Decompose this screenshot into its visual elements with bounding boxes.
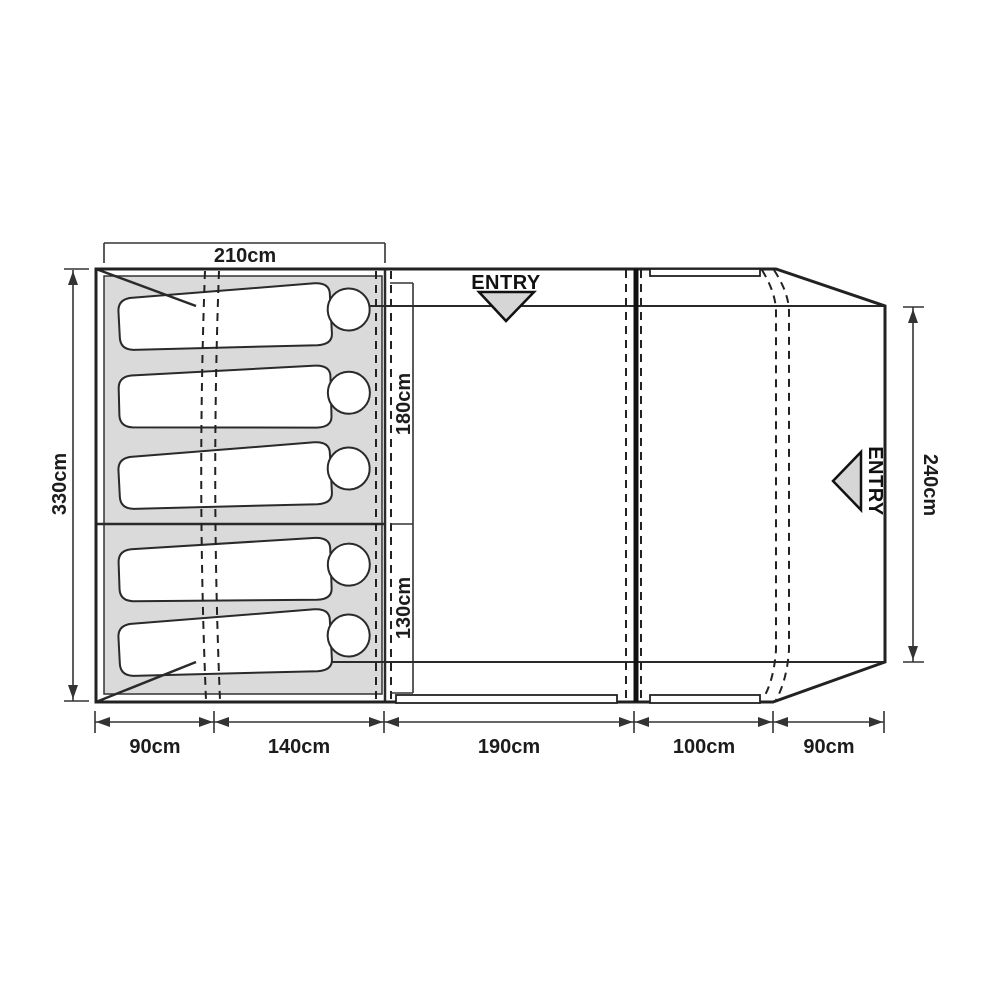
sleeper-2-head <box>327 371 370 414</box>
dim-330-arrow-down <box>68 685 78 699</box>
bottom-door-notch-left <box>396 695 617 703</box>
arrow-seg4-left <box>635 717 649 727</box>
dimension-bottom-chain: 90cm 140cm 190cm 100cm 90cm <box>95 711 884 758</box>
dimension-left-330: 330cm <box>49 269 89 701</box>
dimension-top-210: 210cm <box>104 243 385 267</box>
dim-330-label: 330cm <box>49 453 71 515</box>
floorplan-svg: ENTRY ENTRY 210cm 330cm 180cm 130cm <box>0 0 1000 1000</box>
dim-240-label: 240cm <box>919 454 941 516</box>
sleeper-3-head <box>327 446 371 490</box>
dim-210-label: 210cm <box>214 245 276 267</box>
entry-side-marker: ENTRY <box>833 446 886 516</box>
dim-bottom-label-4: 100cm <box>673 736 735 758</box>
sleeper-5-head <box>327 613 371 657</box>
arrow-seg2-right <box>369 717 383 727</box>
dim-bottom-label-3: 190cm <box>478 736 540 758</box>
dim-bottom-label-1: 90cm <box>129 736 180 758</box>
arrow-seg1-right <box>199 717 213 727</box>
entry-top-marker: ENTRY <box>471 272 541 321</box>
sleeper-4-head <box>327 543 370 586</box>
dim-180-label: 180cm <box>393 373 415 435</box>
sleeper-1-head <box>327 287 371 331</box>
sleeper-2-body <box>118 365 332 433</box>
entry-side-label: ENTRY <box>864 446 886 516</box>
arrow-seg5-left <box>774 717 788 727</box>
right-beam-dash-1 <box>762 270 776 699</box>
dim-240-arrow-down <box>908 646 918 660</box>
entry-top-label: ENTRY <box>471 272 541 294</box>
dimension-right-240: 240cm <box>903 307 941 662</box>
arrow-seg4-right <box>758 717 772 727</box>
dim-bottom-label-5: 90cm <box>803 736 854 758</box>
arrow-seg3-left <box>385 717 399 727</box>
arrow-seg1-left <box>96 717 110 727</box>
bottom-door-notch-right <box>650 695 760 703</box>
tent-floorplan-diagram: ENTRY ENTRY 210cm 330cm 180cm 130cm <box>0 0 1000 1000</box>
entry-side-arrow-icon <box>833 452 861 510</box>
dim-240-arrow-up <box>908 309 918 323</box>
dim-130-label: 130cm <box>393 577 415 639</box>
dim-bottom-label-2: 140cm <box>268 736 330 758</box>
dim-330-arrow-up <box>68 271 78 285</box>
arrow-seg5-right <box>869 717 883 727</box>
dimension-bedroom-bracket: 180cm 130cm <box>390 283 415 693</box>
sleeper-4-body <box>118 537 332 606</box>
arrow-seg2-left <box>215 717 229 727</box>
top-door-notch <box>650 269 760 276</box>
arrow-seg3-right <box>619 717 633 727</box>
